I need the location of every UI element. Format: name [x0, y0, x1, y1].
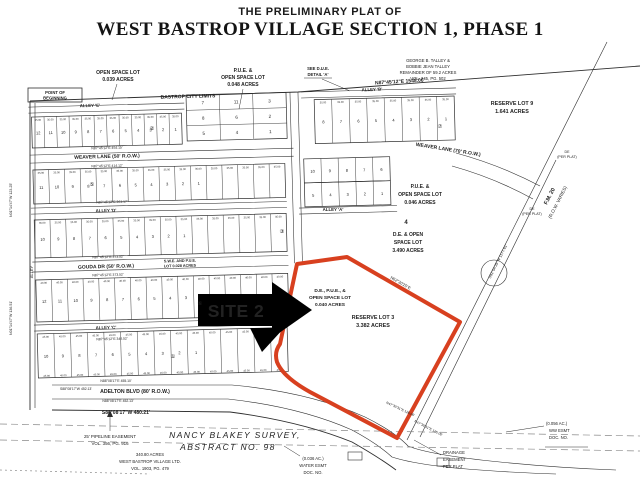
band-alley-d-south-lot-line	[50, 220, 51, 258]
band-gouda-south-dim: 40.00	[135, 278, 142, 282]
band-weaver-south-dim: 35.00	[101, 169, 108, 173]
band-weaver-north-lot-9: 9	[74, 129, 77, 134]
band-weaver-north-lot-line	[94, 115, 95, 146]
boundary-dash-dot	[0, 470, 150, 474]
title-line-2: WEST BASTROP VILLAGE SECTION 1, PHASE 1	[0, 19, 640, 41]
band-alley-b-south-dim: 35.00	[372, 99, 379, 103]
weaver50-lines	[30, 148, 294, 163]
site2-label: SITE 2	[208, 301, 265, 321]
brg-road-2: N47°30'31"E 126.06'	[414, 419, 444, 437]
band-weaver-north-dim: 35.00	[110, 116, 117, 120]
band-weaver-north-lot-line	[82, 116, 83, 147]
band-alley-b-south-lot-line	[419, 97, 420, 141]
band-adelton-north-dim-b: 45.00	[143, 371, 150, 375]
see-due-2: DETAIL 'A'	[308, 72, 329, 77]
band-gouda-south-lot-6: 6	[138, 296, 141, 301]
band-weaver-north-lot-line	[119, 115, 120, 146]
band-weaver-south-lot-line	[143, 167, 144, 201]
band-weaver-south-dim: 35.00	[69, 170, 76, 174]
band-gouda-south-dim: 40.00	[40, 281, 47, 285]
band-weaver-north-lot-4: 4	[137, 128, 140, 133]
wbv-3: VOL. 1903, PG. 479	[131, 466, 169, 471]
band-adelton-north-lot-line	[170, 330, 171, 374]
band-weaver-south-dim: 35.00	[53, 170, 60, 174]
brg-gouda-top: N87°45'12"E 373.52'	[92, 255, 124, 260]
band-alley-a-north1: 109876	[304, 157, 391, 183]
band-alley-d-south-dim: 35.00	[133, 218, 140, 222]
band-adelton-north-dim-b: 45.00	[93, 372, 100, 376]
band-alley-a-north2: 54321	[304, 181, 391, 207]
adelton-north-line	[52, 385, 616, 470]
alley-d: ALLEY 'D'	[96, 208, 117, 214]
pue-048-3: 0.048 ACRES	[227, 82, 259, 88]
band-weaver-north-lot-1: 1	[174, 127, 177, 132]
band-adelton-north-lot-line	[220, 329, 221, 373]
band-weaver-south: 1135.001035.00935.00835.00735.00635.0053…	[33, 163, 286, 204]
band-alley-a-north1-lot-line	[321, 158, 322, 182]
band-alley-a-north1-lot-line	[338, 158, 339, 182]
leader-open-space-e	[112, 84, 117, 100]
band-alley-b-south-lot-1: 1	[445, 116, 448, 121]
band-adelton-north-dim-b: 45.00	[43, 374, 50, 378]
band-alley-b-south-lot-line	[384, 98, 385, 142]
title-line-1: THE PRELIMINARY PLAT OF	[0, 6, 640, 18]
band-weaver-south-lot-line	[96, 168, 97, 202]
band-adelton-north-lot-line	[54, 334, 55, 378]
de-per-plat-1a: DE	[565, 150, 571, 154]
wbv-2: WEST BASTROP VILLAGE LTD.	[119, 459, 181, 464]
band-alley-a-north1-lot-line	[372, 157, 373, 181]
band-alley-d-south-dim: 35.00	[244, 215, 251, 219]
alley-a: ALLEY 'A'	[323, 207, 344, 212]
band-adelton-north-dim-b: 45.00	[127, 371, 134, 375]
band-alley-d-south-dim: 35.00	[181, 217, 188, 221]
band-weaver-south-dim: 35.00	[258, 165, 265, 169]
band-adelton-north-dim: 45.00	[76, 334, 83, 338]
band-alley-d-south-dim: 35.00	[86, 219, 93, 223]
water-esmt-1: (0.036 AC.)	[302, 456, 324, 461]
band-alley-a-north1-lot-6: 6	[380, 167, 383, 172]
band-alley-d-south-dim: 35.00	[55, 220, 62, 224]
talley-3: REMAINDER OF 59.2 ACRES	[400, 70, 457, 75]
block-center-lot-8: 8	[202, 116, 205, 121]
water-esmt-2: WATER ESMT	[299, 463, 327, 468]
drainage-3: PER PLAT	[443, 464, 463, 469]
alley-e-lines	[28, 103, 184, 113]
band-weaver-south-lot-line	[49, 170, 50, 204]
drainage-1: DRAINAGE	[443, 450, 465, 455]
band-weaver-south-dim: 35.00	[132, 168, 139, 172]
band-weaver-north-dim: 35.00	[35, 118, 42, 122]
pue-046-1: P.U.E. &	[411, 184, 430, 190]
band-weaver-south-dim: 35.00	[242, 165, 249, 169]
band-gouda-south-dim: 40.00	[229, 276, 236, 280]
band-weaver-south-lot-2: 2	[182, 181, 185, 186]
band-alley-b-south: 835.00735.00635.00535.00435.00335.00235.…	[314, 96, 455, 144]
boundary-480: S88°08'17"W 480.21'	[102, 410, 150, 416]
wbv-1: 340.80 ACRES	[136, 452, 164, 457]
band-alley-b-south-lot-line	[402, 97, 403, 141]
band-weaver-north-lot-10: 10	[61, 130, 66, 135]
survey-name-1: NANCY BLAKEY SURVEY,	[169, 430, 301, 440]
alley-c: ALLEY 'C'	[96, 325, 117, 331]
band-weaver-south-lot-line	[175, 166, 176, 200]
de-pue-040-3: 0.040 ACRES	[315, 302, 346, 308]
band-weaver-north-lot-6: 6	[112, 128, 115, 133]
band-alley-d-south-lot-line	[160, 217, 161, 255]
band-gouda-south-dim: 40.00	[119, 279, 126, 283]
de-pue-040-2: OPEN SPACE LOT	[309, 295, 351, 301]
band-gouda-south-lot-line	[99, 278, 100, 320]
reserve-lot3-highlight-outline	[276, 257, 460, 438]
band-alley-b-south-lot-3: 3	[410, 117, 413, 122]
plat-map: 1235.001135.001035.00935.00835.00735.006…	[0, 0, 640, 480]
band-alley-b-south-lot-line	[349, 99, 350, 143]
block-number-1: ②	[150, 125, 155, 132]
band-alley-b-south-lot-line	[437, 96, 438, 140]
de-per-plat-2b: (PER PLAT)	[522, 212, 542, 216]
block-center-row-line	[187, 123, 287, 126]
brg-fm20: S02°04'35"W 1177.61'	[488, 244, 509, 280]
band-gouda-south-dim: 40.00	[261, 275, 268, 279]
band-weaver-south-lot-line	[127, 168, 128, 202]
band-weaver-south-dim: 35.00	[164, 167, 171, 171]
band-gouda-south-lot-line	[146, 277, 147, 319]
band-alley-d-south-lot-10: 10	[40, 237, 45, 242]
block-center-lot-2: 2	[269, 114, 272, 119]
band-gouda-south-dim: 40.00	[277, 274, 284, 278]
pipeline-1: 25' PIPELINE EASEMENT	[84, 434, 136, 439]
band-adelton-north-dim: 45.00	[176, 331, 183, 335]
band-weaver-south-lot-line	[159, 167, 160, 201]
band-weaver-south-lot-10: 10	[55, 184, 60, 189]
band-alley-b-south-dim: 35.00	[407, 98, 414, 102]
de-per-plat-2a: DE	[530, 207, 536, 211]
band-weaver-north-lot-line	[69, 116, 70, 147]
band-weaver-north-dim: 35.00	[172, 114, 179, 118]
band-weaver-north-lot-2: 2	[162, 127, 165, 132]
band-gouda-south-lot-line	[130, 278, 131, 320]
pob-line2: BEGINNING	[43, 96, 67, 101]
block-center: 7113862541	[186, 92, 287, 141]
brg-weaver-top: N87°45'12"E 454.15'	[91, 146, 123, 151]
band-alley-b-south-dim: 35.00	[442, 97, 449, 101]
band-alley-d-south-lot-line	[176, 216, 177, 254]
band-weaver-south-lot-line	[190, 166, 191, 200]
fm20-west-row-line	[420, 160, 556, 437]
band-weaver-north-lot-11: 11	[49, 130, 54, 135]
band-alley-d-south-lot-line	[81, 219, 82, 257]
band-weaver-south-dim: 35.00	[195, 167, 202, 171]
band-adelton-north-lot-line	[137, 331, 138, 375]
band-alley-d-south-lot-1: 1	[183, 233, 186, 238]
band-alley-d-south-lot-line	[113, 218, 114, 256]
block-center-lot-4: 4	[236, 130, 239, 135]
band-adelton-north-dim-b: 45.00	[260, 368, 267, 372]
de-open-1: D.E. & OPEN	[393, 232, 424, 238]
site2-marker: SITE 2	[198, 282, 312, 352]
alley-west: ALLEY	[29, 265, 34, 278]
band-weaver-south-lot-1: 1	[198, 181, 201, 186]
band-adelton-north-dim-b: 45.00	[227, 369, 234, 373]
band-weaver-south-dim: 35.00	[226, 166, 233, 170]
band-alley-d-south-dim: 35.00	[70, 220, 77, 224]
band-alley-d-south-lot-line	[97, 218, 98, 256]
band-gouda-south-lot-9: 9	[90, 297, 93, 302]
band-adelton-north-dim-b: 45.00	[110, 372, 117, 376]
de-per-plat-1b: (PER PLAT)	[557, 155, 577, 159]
band-alley-b-south-lot-8: 8	[322, 119, 325, 124]
band-weaver-north-dim: 35.00	[122, 115, 129, 119]
brg-adelton-top: N88°08'17"E 455.10'	[100, 379, 132, 383]
band-weaver-north-dim: 35.00	[85, 116, 92, 120]
band-weaver-north-dim: 35.00	[60, 117, 67, 121]
band-adelton-north-dim: 45.00	[209, 330, 216, 334]
band-weaver-south-dim: 35.00	[179, 167, 186, 171]
band-alley-a-north1-lot-10: 10	[310, 169, 315, 174]
band-alley-b-south-dim: 35.00	[355, 99, 362, 103]
band-gouda-south-dim: 40.00	[72, 280, 79, 284]
band-adelton-north-lot-line	[87, 333, 88, 377]
vertical-street-lines	[290, 92, 302, 263]
band-adelton-north-lot-line	[71, 333, 72, 377]
band-alley-b-south-dim: 35.00	[425, 98, 432, 102]
band-gouda-south-dim: 40.00	[166, 277, 173, 281]
band-gouda-south-dim: 40.00	[151, 278, 158, 282]
band-adelton-north-dim-b: 45.00	[177, 370, 184, 374]
band-weaver-south-lot-line	[206, 165, 207, 199]
band-gouda-south-lot-line	[193, 276, 194, 318]
band-weaver-south-dim: 35.00	[148, 168, 155, 172]
swe-pue-1: S.W.E. AND P.U.E.	[164, 259, 196, 264]
band-adelton-north-dim-b: 45.00	[193, 370, 200, 374]
block-center-lot-3: 3	[268, 98, 271, 103]
band-alley-b-south-dim: 35.00	[320, 100, 327, 104]
band-adelton-north-dim: 45.00	[226, 330, 233, 334]
band-weaver-north-dim: 35.00	[135, 115, 142, 119]
band-alley-b-south-lot-5: 5	[375, 118, 378, 123]
band-gouda-south-dim: 40.00	[182, 277, 189, 281]
band-gouda-south-dim: 40.00	[245, 275, 252, 279]
block-number-2: ⑤	[90, 181, 95, 188]
band-alley-a-north1-lot-7: 7	[363, 167, 366, 172]
band-alley-b-south-lot-6: 6	[357, 118, 360, 123]
band-alley-d-south-dim: 35.00	[259, 215, 266, 219]
brg-adelton-bot: N88°08'17"E 452.13'	[102, 399, 134, 403]
band-alley-b-south-lot-4: 4	[392, 118, 395, 123]
band-alley-b-south-lot-line	[367, 98, 368, 142]
pipeline-2: VOL. 356, PG. 916	[91, 441, 129, 446]
alley-b: ALLEY 'B'	[361, 87, 382, 93]
band-weaver-south-lot-3: 3	[166, 181, 169, 186]
band-gouda-south-lot-line	[115, 278, 116, 320]
block-number-6: ⑦	[438, 123, 443, 130]
band-weaver-south-lot-line	[112, 168, 113, 202]
leader-pue-048	[239, 89, 243, 109]
band-alley-a-north2-lot-3: 3	[346, 192, 349, 197]
gouda-lines	[32, 255, 288, 272]
block-center-row-line	[186, 108, 286, 111]
band-adelton-north-dim-b: 45.00	[77, 373, 84, 377]
de-pue-040-1: D.E., P.U.E., &	[314, 288, 346, 294]
open-space-e-2: 0.039 ACRES	[102, 77, 134, 83]
band-alley-a-north2-lot-2: 2	[364, 191, 367, 196]
band-weaver-north-lot-line	[156, 114, 157, 145]
alley-e: ALLEY 'E'	[80, 103, 101, 109]
band-weaver-south-lot-line	[80, 169, 81, 203]
band-alley-d-south-lot-2: 2	[167, 233, 170, 238]
south-boundary-line	[52, 410, 396, 470]
brg-west-1: N01°14'47"W 123.25'	[9, 183, 13, 217]
band-weaver-south-dim: 35.00	[85, 169, 92, 173]
band-weaver-north-lot-line	[44, 117, 45, 148]
band-adelton-north-dim-b: 45.00	[210, 369, 217, 373]
band-alley-d-south-lot-line	[66, 219, 67, 257]
band-adelton-north-lot-2: 2	[178, 350, 181, 355]
pue-048-2: OPEN SPACE LOT	[221, 75, 265, 81]
brg-west-2: N01°14'47"W 136.51'	[9, 301, 13, 335]
band-weaver-north-lot-7: 7	[99, 129, 102, 134]
band-gouda-south-lot-line	[67, 279, 68, 321]
ww-esmt-3: DOC. NO.	[549, 435, 568, 440]
band-weaver-south-lot-7: 7	[103, 183, 106, 188]
band-gouda-south-lot-4: 4	[169, 295, 172, 300]
block-center-lot-1: 1	[269, 129, 272, 134]
band-alley-b-south-lot-7: 7	[340, 119, 343, 124]
band-weaver-south-lot-5: 5	[135, 182, 138, 187]
band-alley-d-south: 1035.00935.00835.00735.00635.00535.00435…	[34, 213, 287, 258]
block-number-4: ⑥	[198, 300, 203, 307]
water-esmt-3: DOC. NO.	[303, 470, 322, 475]
band-adelton-north-dim: 45.00	[59, 334, 66, 338]
block-number-3: ③	[280, 228, 285, 235]
band-weaver-north-dim: 35.00	[47, 117, 54, 121]
band-adelton-north-lot-6: 6	[112, 352, 115, 357]
band-alley-d-south-lot-3: 3	[152, 234, 155, 239]
band-weaver-north: 1235.001135.001035.00935.00835.00735.006…	[32, 113, 183, 148]
bastrop-city-limits: BASTROP CITY LIMITS	[160, 93, 216, 100]
lot-4: 4	[404, 220, 408, 226]
band-alley-d-south-dim: 35.00	[196, 217, 203, 221]
plat-sheet: THE PRELIMINARY PLAT OF WEST BASTROP VIL…	[0, 0, 640, 480]
band-weaver-north-lot-line	[169, 113, 170, 144]
brg-alley-d: N87°45'12"E 361.17'	[96, 200, 128, 205]
band-weaver-north-dim: 35.00	[72, 117, 79, 121]
band-gouda-south-lot-8: 8	[106, 297, 109, 302]
band-weaver-south-dim: 35.00	[116, 169, 123, 173]
band-weaver-south-lot-9: 9	[72, 184, 75, 189]
band-weaver-south-lot-line	[222, 165, 223, 199]
band-weaver-north-lot-line	[106, 115, 107, 146]
band-adelton-north-lot-line	[154, 331, 155, 375]
reserve-lot9-2: 1.641 ACRES	[495, 109, 529, 115]
band-weaver-south-lot-line	[269, 164, 270, 198]
band-alley-a-north2-lot-line	[373, 181, 374, 205]
talley-4: VOL. 245, PG. 502	[410, 76, 446, 81]
band-weaver-north-lot-line	[57, 116, 58, 147]
block-center-col-line	[219, 94, 220, 140]
band-adelton-north-dim: 45.00	[192, 331, 199, 335]
ww-esmt-2: WW ESMT	[549, 428, 570, 433]
band-alley-d-south-lot-6: 6	[104, 235, 107, 240]
band-adelton-north-lot-1: 1	[195, 350, 198, 355]
band-alley-d-south-lot-7: 7	[89, 236, 92, 241]
reserve-lot9-1: RESERVE LOT 9	[491, 101, 533, 107]
band-gouda-south-lot-line	[83, 279, 84, 321]
band-adelton-north-dim: 45.00	[242, 329, 249, 333]
band-weaver-south-lot-line	[238, 165, 239, 199]
band-alley-d-south-dim: 35.00	[118, 219, 125, 223]
brg-452-left: S88°08'17"W 452.13'	[60, 387, 92, 391]
brg-gouda-bot: N87°45'12"E 373.52'	[92, 273, 124, 278]
band-weaver-north-dim: 35.00	[160, 115, 167, 119]
band-alley-d-south-lot-line	[207, 215, 208, 253]
block-center-col-line	[253, 93, 254, 139]
band-weaver-north-lot-12: 12	[36, 130, 41, 135]
band-adelton-north-dim: 45.00	[42, 335, 49, 339]
band-weaver-north-lot-8: 8	[87, 129, 90, 134]
adelton-blvd: ADELTON BLVD (80' R.O.W.)	[100, 389, 170, 395]
band-alley-d-south-dim: 35.00	[39, 221, 46, 225]
pue-046-2: OPEN SPACE LOT	[398, 192, 442, 198]
band-adelton-north-lot-10: 10	[44, 354, 49, 359]
band-gouda-south-lot-line	[52, 280, 53, 322]
band-alley-b-south-dim: 35.00	[390, 98, 397, 102]
open-space-e-1: OPEN SPACE LOT	[96, 70, 140, 76]
talley-2: BOBBIE JEAN TALLEY	[406, 64, 450, 69]
brg-alley-c: N87°45'12"E 346.52'	[96, 337, 128, 342]
band-adelton-north-lot-line	[204, 330, 205, 374]
band-adelton-north-lot-7: 7	[95, 352, 98, 357]
band-gouda-south-lot-3: 3	[185, 295, 188, 300]
band-alley-d-south-lot-8: 8	[73, 236, 76, 241]
band-adelton-north-lot-3: 3	[162, 351, 165, 356]
reserve-lot3-1: RESERVE LOT 3	[352, 315, 394, 321]
band-adelton-north-lot-line	[237, 329, 238, 373]
ww-esmt-1: (0.056 AC.)	[546, 421, 568, 426]
band-weaver-north-lot-line	[144, 114, 145, 145]
band-alley-a-north2-lot-5: 5	[312, 193, 315, 198]
band-alley-d-south-lot-line	[255, 214, 256, 252]
weaver70-south-line	[452, 166, 533, 199]
weaver-lane-50: WEAVER LANE (50' R.O.W.)	[74, 153, 140, 161]
lot-blocks: 7113862541	[186, 92, 287, 141]
band-adelton-north-dim-b: 45.00	[160, 371, 167, 375]
band-alley-b-south-lot-line	[332, 99, 333, 143]
band-alley-b-south-lot-2: 2	[427, 117, 430, 122]
band-alley-a-north1-lot-9: 9	[329, 168, 332, 173]
block-center-lot-7: 7	[202, 100, 205, 105]
band-weaver-south-dim: 35.00	[274, 165, 281, 169]
band-weaver-north-dim: 35.00	[147, 115, 154, 119]
brg-weaver-bot: N87°45'12"E 414.12'	[91, 164, 123, 169]
band-alley-d-south-dim: 35.00	[275, 215, 282, 219]
band-alley-d-south-lot-9: 9	[57, 236, 60, 241]
block-center-lot-6: 6	[235, 115, 238, 120]
pue-046-3: 0.046 ACRES	[404, 200, 436, 206]
band-alley-d-south-lot-4: 4	[136, 234, 139, 239]
band-gouda-south-dim: 40.00	[103, 279, 110, 283]
leader-see-due	[304, 78, 350, 91]
band-gouda-south-lot-12: 12	[42, 299, 47, 304]
band-weaver-south-dim: 35.00	[211, 166, 218, 170]
pue-048-1: P.U.E. &	[234, 68, 253, 74]
band-weaver-north-lot-5: 5	[124, 128, 127, 133]
survey-name-2: ABSTRACT NO. 98	[179, 442, 276, 452]
band-alley-d-south-dim: 35.00	[149, 218, 156, 222]
talley-1: GEORGE B. TALLEY &	[406, 58, 450, 63]
band-gouda-south-lot-11: 11	[58, 298, 63, 303]
